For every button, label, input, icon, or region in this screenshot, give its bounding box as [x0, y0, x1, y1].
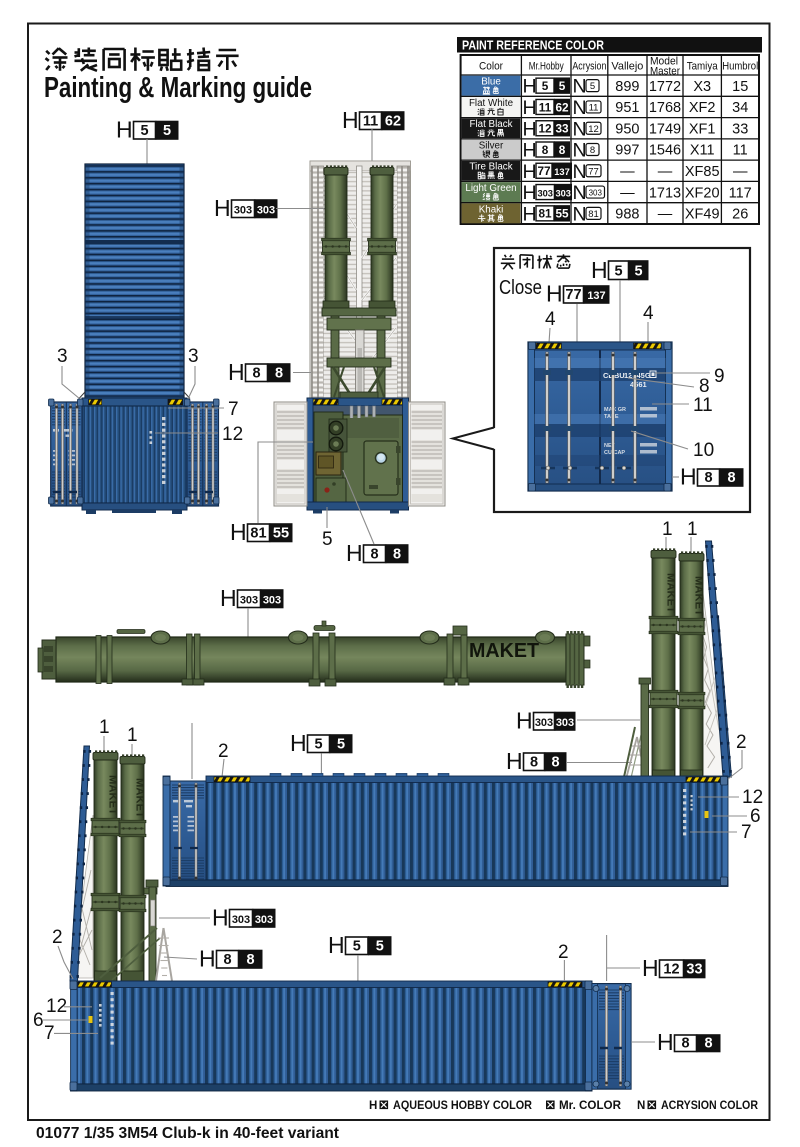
svg-text:12: 12	[588, 124, 599, 135]
svg-text:8: 8	[699, 376, 710, 397]
svg-text:12: 12	[538, 122, 552, 136]
svg-text:5: 5	[559, 79, 566, 93]
svg-text:55: 55	[555, 207, 569, 221]
svg-text:1749: 1749	[649, 121, 681, 137]
svg-text:MAKET: MAKET	[693, 576, 705, 616]
svg-text:H: H	[523, 76, 537, 98]
svg-text:5: 5	[322, 529, 333, 550]
svg-text:Vallejo: Vallejo	[611, 61, 643, 73]
svg-text:8: 8	[551, 754, 559, 770]
svg-text:899: 899	[615, 79, 639, 95]
svg-text:H: H	[290, 730, 307, 756]
svg-text:303: 303	[232, 914, 250, 926]
svg-text:H: H	[523, 161, 537, 183]
svg-text:MAKET: MAKET	[469, 640, 539, 662]
svg-text:CU CAP: CU CAP	[604, 450, 625, 456]
svg-text:H: H	[523, 140, 537, 162]
svg-text:XF1: XF1	[689, 121, 716, 137]
svg-text:303: 303	[240, 594, 258, 606]
svg-text:5: 5	[140, 123, 148, 139]
svg-text:MAKET: MAKET	[134, 778, 146, 818]
svg-text:Tire Black: Tire Black	[469, 162, 512, 173]
svg-text:5: 5	[314, 736, 322, 752]
svg-text:Mr.Hobby: Mr.Hobby	[529, 61, 564, 73]
svg-text:1713: 1713	[649, 185, 681, 201]
svg-text:2: 2	[52, 927, 63, 948]
svg-text:137: 137	[554, 167, 570, 177]
svg-text:303: 303	[263, 594, 281, 606]
svg-text:H: H	[212, 905, 229, 931]
svg-text:5: 5	[542, 79, 549, 93]
svg-text:5: 5	[353, 938, 361, 954]
svg-text:303: 303	[555, 188, 571, 198]
svg-text:5: 5	[376, 938, 384, 954]
svg-text:11: 11	[363, 113, 378, 129]
svg-text:77: 77	[537, 164, 551, 178]
svg-text:62: 62	[555, 100, 569, 114]
svg-text:5: 5	[614, 263, 622, 279]
svg-text:N: N	[573, 140, 587, 162]
svg-text:303: 303	[535, 717, 553, 729]
svg-text:H: H	[523, 182, 537, 204]
svg-text:11: 11	[693, 395, 713, 416]
svg-text:H: H	[220, 585, 237, 611]
svg-text:1: 1	[127, 725, 138, 746]
svg-text:1: 1	[662, 519, 673, 540]
svg-text:9: 9	[714, 366, 725, 387]
svg-text:81: 81	[250, 525, 266, 541]
svg-text:303: 303	[255, 914, 273, 926]
svg-text:Humbrol: Humbrol	[722, 61, 758, 73]
svg-text:Light Green: Light Green	[465, 183, 516, 194]
svg-text:7: 7	[228, 399, 239, 420]
svg-text:55: 55	[273, 525, 289, 541]
svg-text:H: H	[342, 107, 359, 133]
svg-text:Painting & Marking guide: Painting & Marking guide	[44, 72, 312, 104]
svg-text:303: 303	[589, 189, 603, 198]
svg-text:8: 8	[252, 365, 260, 381]
svg-text:951: 951	[615, 100, 639, 116]
svg-text:4561: 4561	[630, 380, 647, 389]
svg-text:1546: 1546	[649, 143, 681, 159]
svg-text:H: H	[523, 97, 537, 119]
svg-text:H: H	[516, 708, 533, 734]
svg-text:8: 8	[704, 470, 712, 486]
svg-text:8: 8	[370, 546, 378, 562]
svg-text:XF49: XF49	[685, 207, 720, 223]
svg-text:Silver: Silver	[479, 141, 504, 152]
svg-text:12: 12	[222, 424, 243, 445]
svg-text:997: 997	[615, 143, 639, 159]
svg-text:988: 988	[615, 207, 639, 223]
svg-text:N: N	[573, 97, 587, 119]
svg-text:77: 77	[565, 287, 581, 303]
svg-text:10: 10	[693, 440, 714, 461]
svg-text:Tamiya: Tamiya	[687, 61, 719, 73]
svg-text:6: 6	[33, 1010, 44, 1031]
svg-text:8: 8	[590, 145, 595, 156]
svg-text:8: 8	[530, 754, 538, 770]
svg-text:1772: 1772	[649, 79, 681, 95]
svg-text:H: H	[369, 1100, 377, 1112]
svg-text:H: H	[523, 203, 537, 225]
svg-text:2: 2	[558, 942, 569, 963]
svg-text:N: N	[573, 182, 587, 204]
svg-text:77: 77	[588, 166, 599, 177]
svg-text:137: 137	[587, 290, 605, 302]
svg-text:Blue: Blue	[481, 77, 501, 88]
svg-text:N: N	[637, 1100, 645, 1112]
svg-text:8: 8	[223, 952, 231, 968]
svg-text:34: 34	[732, 100, 748, 116]
svg-text:H: H	[523, 118, 537, 140]
svg-text:8: 8	[727, 470, 735, 486]
svg-text:X11: X11	[690, 143, 715, 159]
svg-text:3: 3	[188, 346, 199, 367]
svg-text:—: —	[733, 164, 748, 180]
svg-text:—: —	[658, 164, 673, 180]
svg-text:5: 5	[163, 123, 171, 139]
svg-text:8: 8	[681, 1035, 689, 1051]
svg-text:Khaki: Khaki	[479, 204, 504, 215]
svg-text:Close: Close	[499, 276, 542, 299]
svg-text:117: 117	[729, 185, 752, 201]
svg-text:Flat Black: Flat Black	[469, 119, 512, 130]
svg-text:H: H	[228, 359, 245, 385]
svg-text:15: 15	[732, 79, 748, 95]
svg-text:303: 303	[234, 204, 252, 216]
svg-text:N: N	[573, 118, 587, 140]
svg-text:11: 11	[733, 143, 748, 159]
svg-text:H: H	[680, 464, 697, 490]
svg-text:MAKET: MAKET	[665, 573, 677, 613]
svg-text:4: 4	[643, 303, 654, 324]
svg-text:12: 12	[742, 787, 763, 808]
svg-text:5: 5	[590, 81, 595, 92]
svg-text:N: N	[573, 203, 587, 225]
svg-text:5: 5	[337, 736, 345, 752]
svg-text:33: 33	[732, 121, 748, 137]
svg-text:12: 12	[46, 996, 67, 1017]
svg-text:3: 3	[57, 346, 68, 367]
svg-text:1: 1	[99, 717, 110, 738]
svg-text:X3: X3	[693, 79, 711, 95]
svg-text:H: H	[199, 946, 216, 972]
svg-text:11: 11	[589, 102, 599, 113]
svg-text:303: 303	[537, 188, 553, 198]
svg-text:12: 12	[663, 961, 679, 977]
svg-text:—: —	[620, 164, 635, 180]
svg-text:8: 8	[559, 143, 566, 157]
svg-text:Color: Color	[479, 61, 503, 73]
svg-text:H: H	[657, 1029, 674, 1055]
svg-text:33: 33	[555, 122, 569, 136]
svg-text:62: 62	[385, 113, 401, 129]
svg-text:6: 6	[750, 806, 761, 827]
svg-text:H: H	[546, 281, 563, 307]
svg-text:XF2: XF2	[689, 100, 716, 116]
svg-text:7: 7	[44, 1023, 55, 1044]
svg-text:H: H	[214, 195, 231, 221]
svg-text:303: 303	[257, 204, 275, 216]
svg-text:1: 1	[687, 519, 698, 540]
svg-text:MAKET: MAKET	[107, 775, 119, 815]
svg-text:7: 7	[741, 822, 752, 843]
svg-text:N: N	[573, 76, 587, 98]
svg-text:H: H	[230, 519, 247, 545]
svg-text:AQUEOUS HOBBY COLOR: AQUEOUS HOBBY COLOR	[393, 1100, 533, 1112]
svg-text:PAINT REFERENCE COLOR: PAINT REFERENCE COLOR	[462, 38, 604, 53]
svg-text:Master: Master	[650, 66, 680, 78]
svg-text:8: 8	[393, 546, 401, 562]
svg-text:81: 81	[588, 209, 599, 220]
svg-text:—: —	[620, 185, 635, 201]
svg-text:2: 2	[736, 732, 747, 753]
svg-text:11: 11	[539, 100, 552, 114]
svg-text:H: H	[591, 257, 608, 283]
svg-text:MAX GR: MAX GR	[604, 407, 626, 413]
svg-text:H: H	[642, 955, 659, 981]
svg-text:Mr. COLOR: Mr. COLOR	[559, 1100, 622, 1112]
svg-text:950: 950	[615, 121, 639, 137]
svg-text:H: H	[506, 748, 523, 774]
svg-text:33: 33	[686, 961, 702, 977]
svg-text:8: 8	[704, 1035, 712, 1051]
svg-text:8: 8	[246, 952, 254, 968]
svg-text:Acrysion: Acrysion	[572, 61, 606, 73]
svg-text:4: 4	[545, 309, 556, 330]
svg-text:XF85: XF85	[685, 164, 720, 180]
svg-text:8: 8	[275, 365, 283, 381]
svg-text:81: 81	[538, 207, 552, 221]
svg-text:H: H	[346, 540, 363, 566]
svg-text:H: H	[116, 117, 133, 143]
svg-text:303: 303	[556, 717, 574, 729]
svg-text:5: 5	[634, 263, 642, 279]
svg-text:H: H	[328, 932, 345, 958]
svg-text:Flat White: Flat White	[469, 98, 514, 109]
svg-text:8: 8	[542, 143, 549, 157]
svg-text:01077 1/35 3M54 Club-k in 40-f: 01077 1/35 3M54 Club-k in 40-feet varian…	[36, 1125, 339, 1142]
svg-text:2: 2	[218, 741, 229, 762]
svg-text:1768: 1768	[649, 100, 681, 116]
svg-text:—: —	[658, 207, 673, 223]
svg-text:26: 26	[732, 207, 748, 223]
svg-text:ACRYSION COLOR: ACRYSION COLOR	[661, 1100, 759, 1112]
svg-text:N: N	[573, 161, 587, 183]
svg-text:XF20: XF20	[685, 185, 720, 201]
